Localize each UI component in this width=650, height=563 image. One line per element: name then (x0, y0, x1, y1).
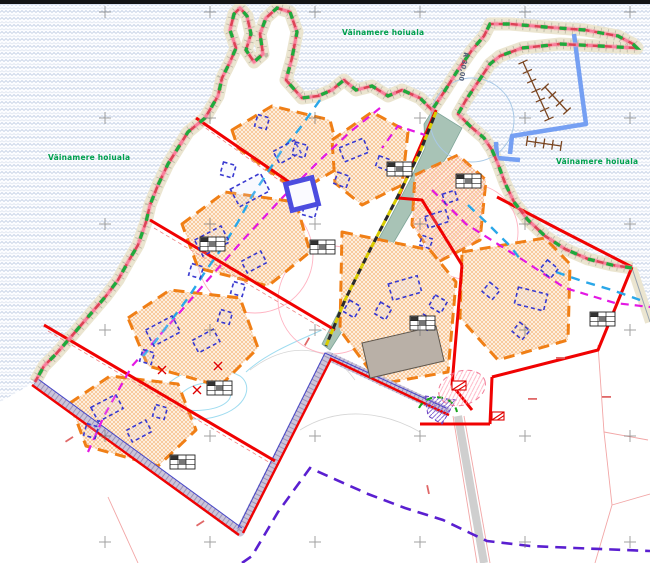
plot-spec-table (200, 237, 225, 251)
planned-building (231, 282, 246, 297)
survey-grid-cross (309, 324, 321, 336)
south-access-road (458, 416, 484, 563)
survey-grid-cross (309, 536, 321, 548)
perimeter-road-red-edge-se (243, 359, 449, 533)
plan-drawing-canvas[interactable]: Väinamere hoiualaVäinamere hoiualaVäinam… (0, 0, 650, 563)
boundary-purple-dashed (242, 468, 650, 563)
survey-grid-cross (204, 430, 216, 442)
illegible-red-label (426, 485, 430, 494)
planned-building (189, 264, 204, 279)
plot-spec-table (170, 455, 195, 469)
map-layers: Väinamere hoiualaVäinamere hoiualaVäinam… (0, 4, 650, 563)
illegible-red-label (304, 337, 310, 346)
survey-grid-cross (624, 430, 636, 442)
illegible-red-label (65, 436, 74, 442)
window-top-bar (0, 0, 650, 4)
plot-spec-table (590, 312, 615, 326)
illegible-red-label (602, 396, 611, 398)
survey-grid-cross (204, 536, 216, 548)
building-plot-w3 (128, 290, 258, 386)
plot-spec-table (387, 162, 412, 176)
plot-spec-table (207, 381, 232, 395)
slipway-symbol (492, 412, 504, 420)
terrain-contour-gray-2 (300, 414, 420, 432)
cadastral-line-left (108, 497, 138, 563)
survey-grid-cross (99, 536, 111, 548)
planned-building (140, 350, 155, 365)
survey-grid-cross (309, 430, 321, 442)
slipway-symbol (452, 381, 466, 390)
plot-spec-table (410, 316, 435, 330)
illegible-red-label (556, 357, 565, 359)
planned-building (220, 162, 236, 178)
illegible-red-label (196, 520, 205, 526)
building-plot-e1 (460, 238, 570, 360)
survey-grid-cross (414, 430, 426, 442)
felling-mark (193, 386, 201, 394)
survey-grid-cross (309, 218, 321, 230)
planned-building (292, 142, 308, 158)
survey-grid-cross (519, 430, 531, 442)
label-area_east: Väinamere hoiuala (556, 157, 638, 166)
special-structure-blue-square (286, 178, 319, 211)
survey-grid-cross (624, 324, 636, 336)
plot-spec-table (456, 174, 481, 188)
plot-spec-table (310, 240, 335, 254)
survey-grid-cross (99, 324, 111, 336)
survey-grid-cross (414, 536, 426, 548)
label-area_west: Väinamere hoiuala (48, 153, 130, 162)
map-svg: Väinamere hoiualaVäinamere hoiualaVäinam… (0, 0, 650, 563)
illegible-red-label (528, 398, 537, 400)
cadastral-line-right-branch1 (612, 494, 650, 505)
label-area_top: Väinamere hoiuala (342, 28, 424, 37)
cadastral-line-right (595, 345, 612, 563)
survey-grid-cross (624, 536, 636, 548)
survey-grid-cross (414, 112, 426, 124)
